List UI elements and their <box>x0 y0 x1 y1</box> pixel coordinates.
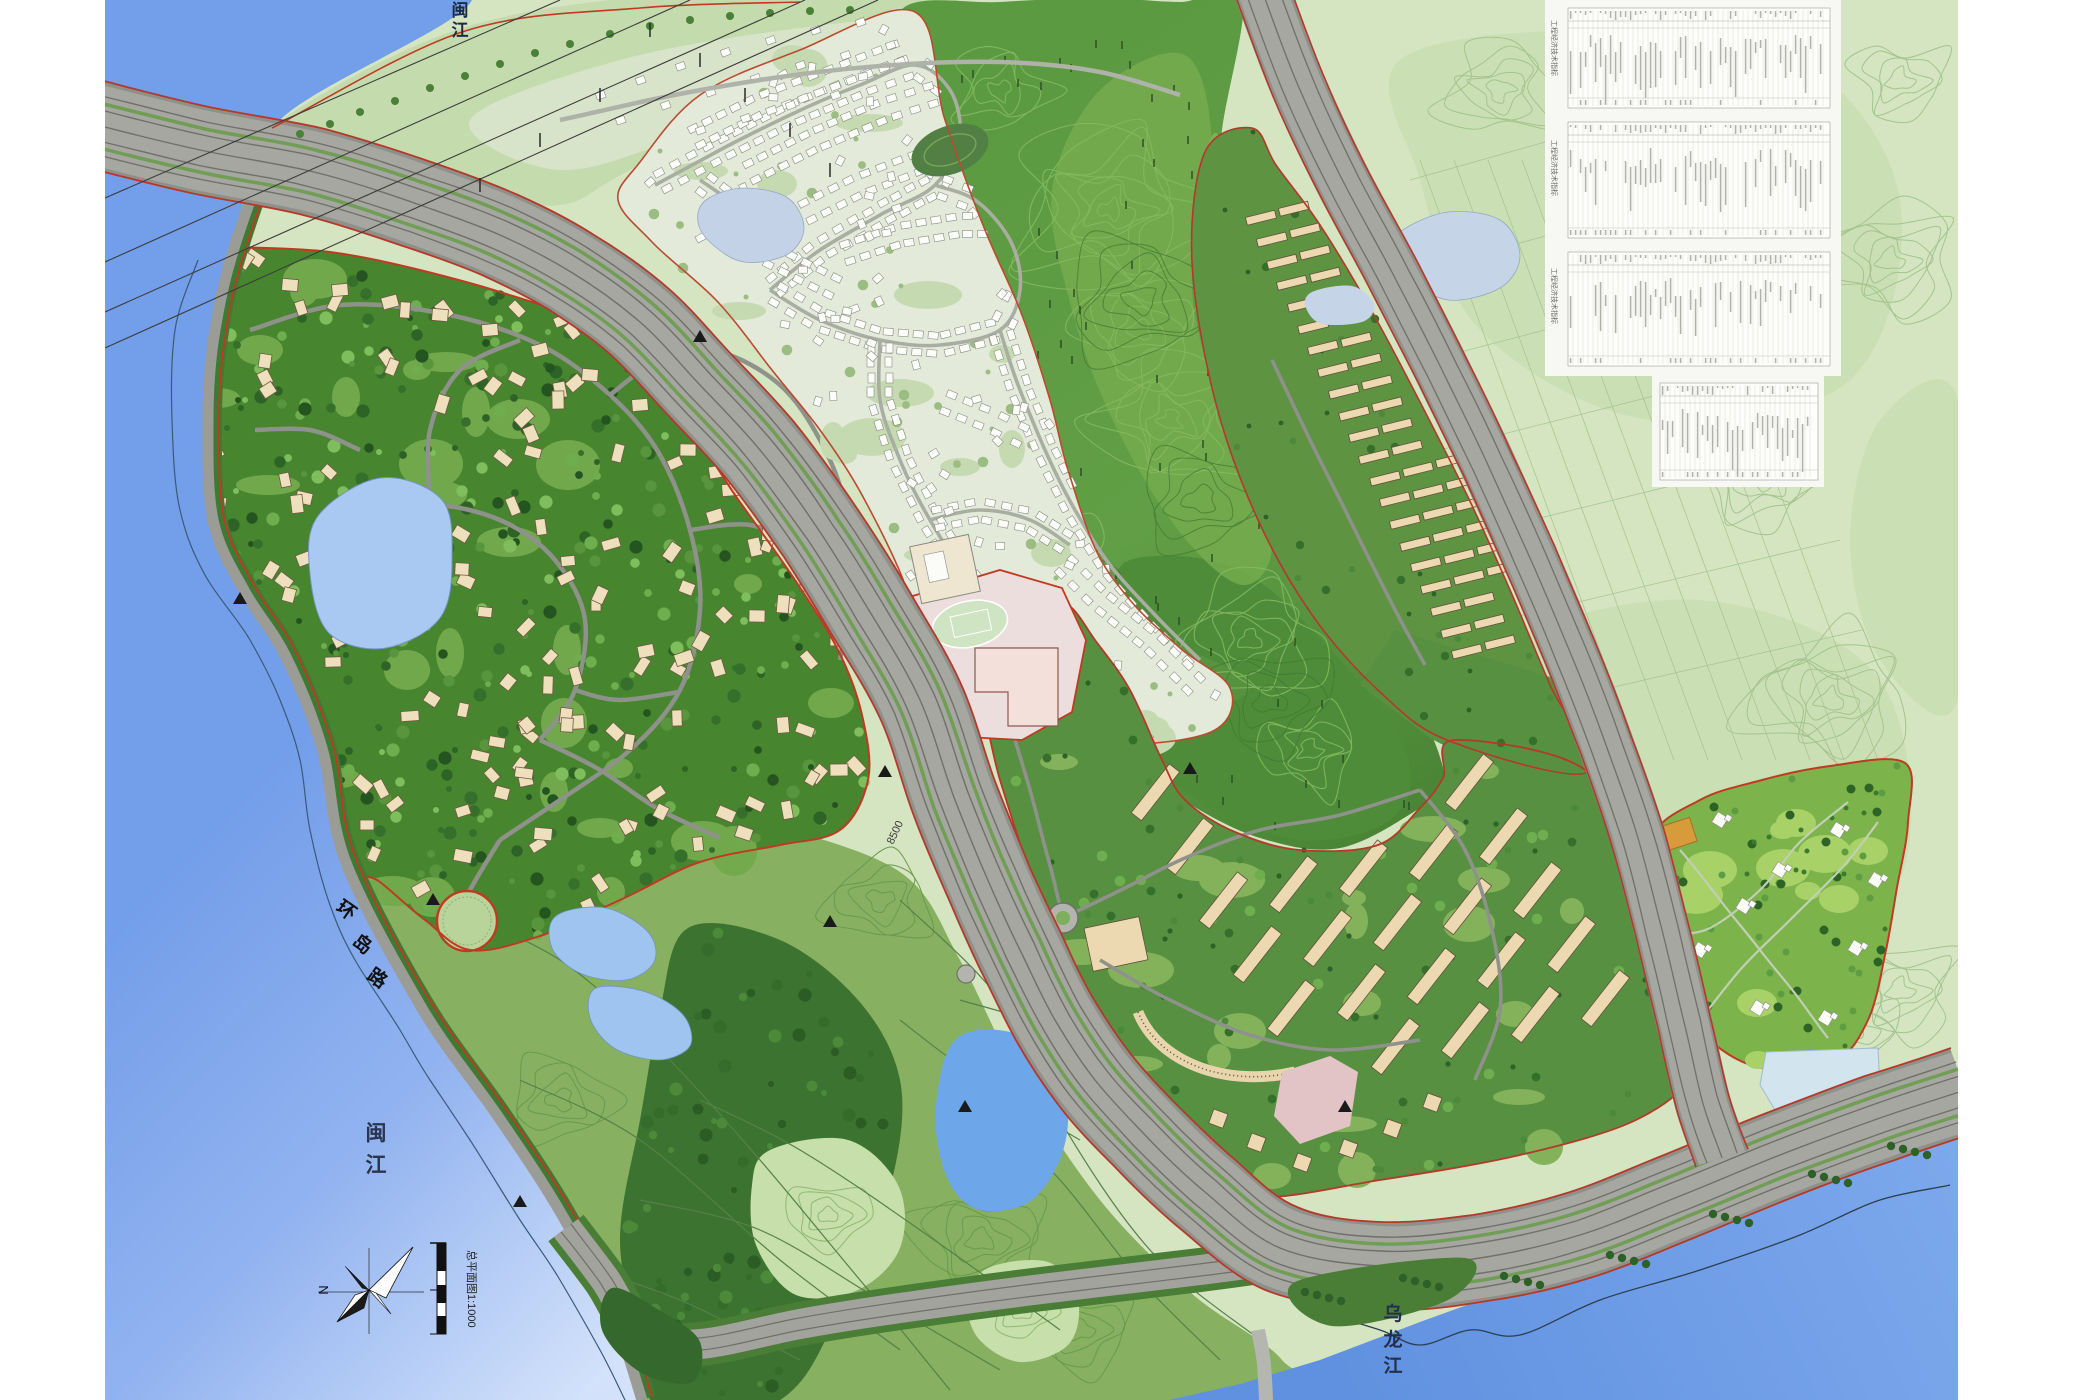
svg-text:闽: 闽 <box>366 1122 387 1145</box>
svg-text:工程经济技术指标: 工程经济技术指标 <box>1550 20 1559 76</box>
svg-text:N: N <box>316 1285 331 1294</box>
svg-text:乌: 乌 <box>1383 1302 1402 1325</box>
svg-text:闽: 闽 <box>452 0 469 20</box>
svg-text:江: 江 <box>452 21 469 40</box>
svg-text:江: 江 <box>1383 1355 1402 1377</box>
svg-text:总平面图1:1000: 总平面图1:1000 <box>465 1250 479 1328</box>
svg-text:江: 江 <box>366 1154 387 1177</box>
svg-text:工程经济技术指标: 工程经济技术指标 <box>1550 268 1559 324</box>
svg-text:工程经济技术指标: 工程经济技术指标 <box>1550 140 1559 196</box>
svg-text:龙: 龙 <box>1383 1328 1402 1351</box>
